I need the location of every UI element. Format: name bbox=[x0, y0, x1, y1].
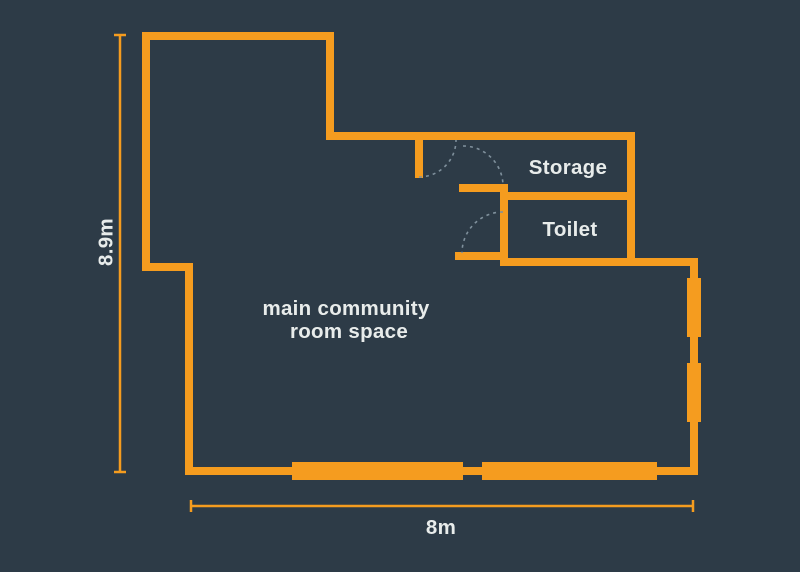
dimension-lines bbox=[114, 35, 693, 512]
walls bbox=[146, 36, 698, 471]
height-dimension-label: 8.9m bbox=[95, 218, 118, 266]
storage-door-swing-arc bbox=[463, 146, 503, 186]
window-bottom-left bbox=[292, 462, 463, 480]
main-room-label-line2: room space bbox=[290, 320, 408, 343]
toilet-door-swing-arc bbox=[462, 212, 503, 253]
horizontal-dimension-line bbox=[191, 500, 693, 512]
corridor-door-swing-arc bbox=[419, 140, 456, 177]
window-right-lower bbox=[687, 363, 701, 422]
labels: main community room space Storage Toilet… bbox=[95, 156, 608, 539]
floor-plan-canvas: main community room space Storage Toilet… bbox=[0, 0, 800, 572]
storage-room-label: Storage bbox=[529, 156, 607, 179]
toilet-room-label: Toilet bbox=[543, 218, 598, 241]
window-right-upper bbox=[687, 278, 701, 337]
floor-plan-svg: main community room space Storage Toilet… bbox=[0, 0, 800, 572]
door-swings bbox=[419, 140, 503, 253]
main-room-label-line1: main community bbox=[262, 297, 429, 320]
main-room-label: main community room space bbox=[262, 297, 435, 343]
width-dimension-label: 8m bbox=[426, 516, 456, 539]
window-bottom-right bbox=[482, 462, 657, 480]
outer-wall-outline bbox=[146, 36, 694, 471]
